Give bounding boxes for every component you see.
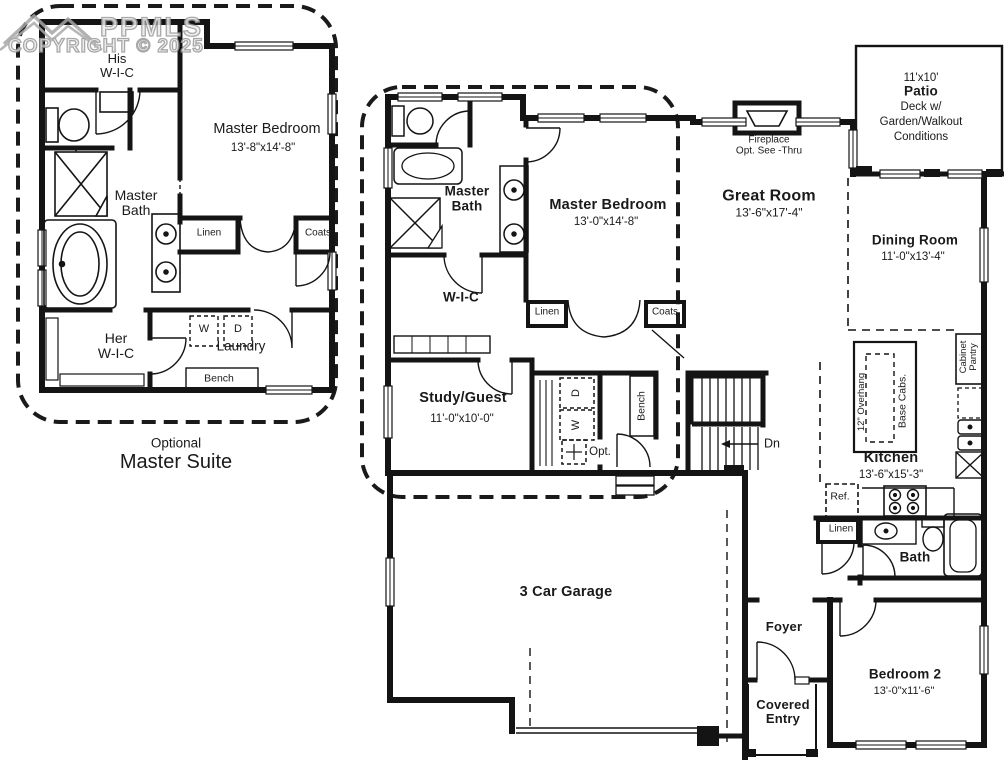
label-ref: Ref. [830, 491, 849, 502]
label-dining-room: Dining Room [872, 234, 958, 249]
label-bedroom2: Bedroom 2 [869, 668, 941, 683]
label-kitchen: Kitchen [864, 451, 919, 467]
label-great-room-dims: 13'-6"x17'-4" [735, 207, 802, 220]
label-covered-entry-line1: Covered [756, 698, 809, 712]
floor-plan-page: PPMLS COPYRIGHT © 2025 His W-I-C Master … [0, 0, 1004, 768]
label-his-wic-line1: His [100, 52, 134, 66]
label-opt-coats: Coats [305, 229, 331, 240]
label-opt-dryer: D [234, 324, 242, 336]
caption-master-suite: Master Suite [120, 452, 232, 474]
label-patio: Patio [904, 85, 938, 100]
label-fireplace-note: Opt. See -Thru [736, 147, 802, 158]
label-coats: Coats [652, 308, 678, 319]
label-patio-note3: Conditions [894, 131, 948, 143]
label-linen: Linen [535, 308, 559, 319]
label-linen2: Linen [829, 525, 853, 536]
label-dryer: D [571, 389, 583, 397]
label-dining-room-dims: 11'-0"x13'-4" [881, 251, 945, 263]
label-opt-laundry: Laundry [217, 340, 266, 355]
label-master-bedroom-dims: 13'-0"x14'-8" [574, 216, 638, 228]
floor-plan-drawing [0, 0, 1004, 768]
label-opt-master-bedroom-dims: 13'-8"x14'-8" [231, 142, 295, 154]
label-foyer: Foyer [766, 620, 802, 634]
label-patio-note1: Deck w/ [901, 101, 942, 113]
label-kitchen-dims: 13'-6"x15'-3" [859, 469, 923, 481]
label-bench: Bench [636, 391, 647, 421]
label-her-wic: Her W-I-C [98, 331, 134, 361]
label-opt-master-bath: Master Bath [115, 188, 158, 218]
label-her-wic-line1: Her [98, 331, 134, 346]
label-opt: Opt. [589, 446, 611, 458]
label-opt-master-bath-line2: Bath [115, 203, 158, 218]
label-stairs-down: Dn [764, 437, 780, 451]
label-overhang: 12" Overhang [857, 373, 867, 431]
label-opt-master-bedroom: Master Bedroom [213, 122, 320, 138]
label-wic: W-I-C [443, 291, 479, 306]
label-garage: 3 Car Garage [520, 585, 613, 601]
label-master-bath: Master Bath [445, 184, 490, 213]
label-his-wic-line2: W-I-C [100, 66, 134, 80]
caption-optional: Optional [151, 437, 201, 452]
label-patio-note2: Garden/Walkout [880, 116, 963, 128]
label-master-bedroom: Master Bedroom [549, 198, 666, 214]
label-bedroom2-dims: 13'-0"x11'-6" [874, 686, 935, 698]
label-covered-entry-line2: Entry [756, 712, 809, 726]
label-cabinet-pantry-line2: Pantry [969, 341, 979, 374]
label-covered-entry: Covered Entry [756, 698, 809, 726]
label-bath: Bath [900, 551, 931, 566]
label-patio-size: 11'x10' [904, 72, 939, 84]
label-study-guest-dims: 11'-0"x10'-0" [430, 413, 494, 425]
label-great-room: Great Room [722, 187, 816, 204]
label-opt-master-bath-line1: Master [115, 188, 158, 203]
label-opt-linen: Linen [197, 229, 221, 240]
label-cabinet-pantry: Cabinet Pantry [959, 341, 980, 374]
label-master-bath-line1: Master [445, 184, 490, 199]
label-opt-washer: W [199, 324, 209, 336]
label-base-cabs: Base Cabs. [897, 374, 908, 428]
label-her-wic-line2: W-I-C [98, 346, 134, 361]
label-washer: W [571, 420, 583, 430]
label-master-bath-line2: Bath [445, 199, 490, 214]
label-his-wic: His W-I-C [100, 52, 134, 80]
label-study-guest: Study/Guest [419, 391, 507, 407]
label-opt-bench: Bench [204, 373, 234, 384]
